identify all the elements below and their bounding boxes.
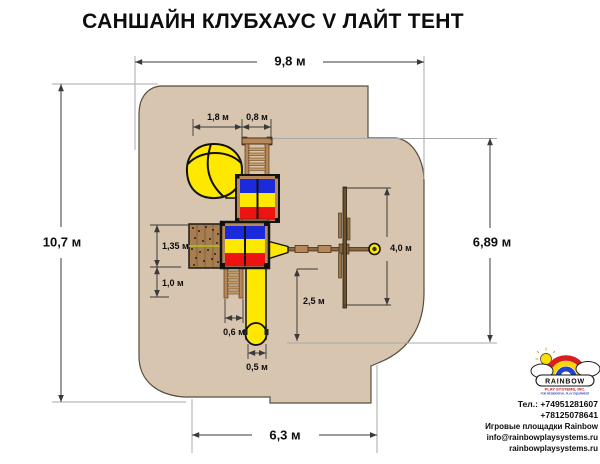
rainbow-logo: RAINBOW PLAY SYSTEMS, INC. FOR RESIDENTI… [531,348,600,396]
dim-label-slide-len: 2,5 м [303,296,325,306]
plan-sheet: САНШАЙН КЛУБХАУС V ЛАЙТ ТЕНТ [0,0,600,464]
dim-label-wall-len: 1,35 м [162,241,189,251]
dim-label-right-depth: 6,89 м [473,235,512,250]
tire-swing [369,244,380,255]
logo-division-text: PLAY SYSTEMS, INC. [545,386,586,391]
logo-tagline-text: FOR RESIDENTIAL PLAY EQUIPMENT [541,391,590,395]
dim-label-spiral-span: 1,8 м [207,112,229,122]
dim-label-swing-len: 4,0 м [390,243,412,253]
dim-label-overall-depth: 10,7 м [43,235,82,250]
contact-phone1: Тел.: +74951281607 [518,399,599,409]
tower-lower [220,221,269,268]
logo-brand-text: RAINBOW [545,379,585,386]
dim-label-ladder-span: 0,8 м [246,112,268,122]
dim-label-slide-width: 0,5 м [246,362,268,372]
contact-caption: Игровые площадки Rainbow [485,422,599,431]
climbing-wall [189,224,222,268]
contact-info: Тел.: +74951281607 +78125078641 Игровые … [485,399,599,453]
page-title: САНШАЙН КЛУБХАУС V ЛАЙТ ТЕНТ [82,9,464,33]
contact-phone2: +78125078641 [540,410,598,420]
dim-label-stairs-len: 1,0 м [162,278,184,288]
access-stairs [224,268,243,298]
tower-upper [235,174,280,223]
dim-label-bottom-width: 6,3 м [269,428,300,443]
straight-slide [244,267,269,345]
spiral-tube-slide [187,144,242,198]
contact-website: rainbowplaysystems.ru [509,444,598,453]
contact-email: info@rainbowplaysystems.ru [487,433,598,442]
site-plan-canvas: САНШАЙН КЛУБХАУС V ЛАЙТ ТЕНТ [0,0,600,464]
dim-label-overall-width: 9,8 м [274,54,305,69]
dim-label-stairs-width: 0,6 м [223,327,245,337]
